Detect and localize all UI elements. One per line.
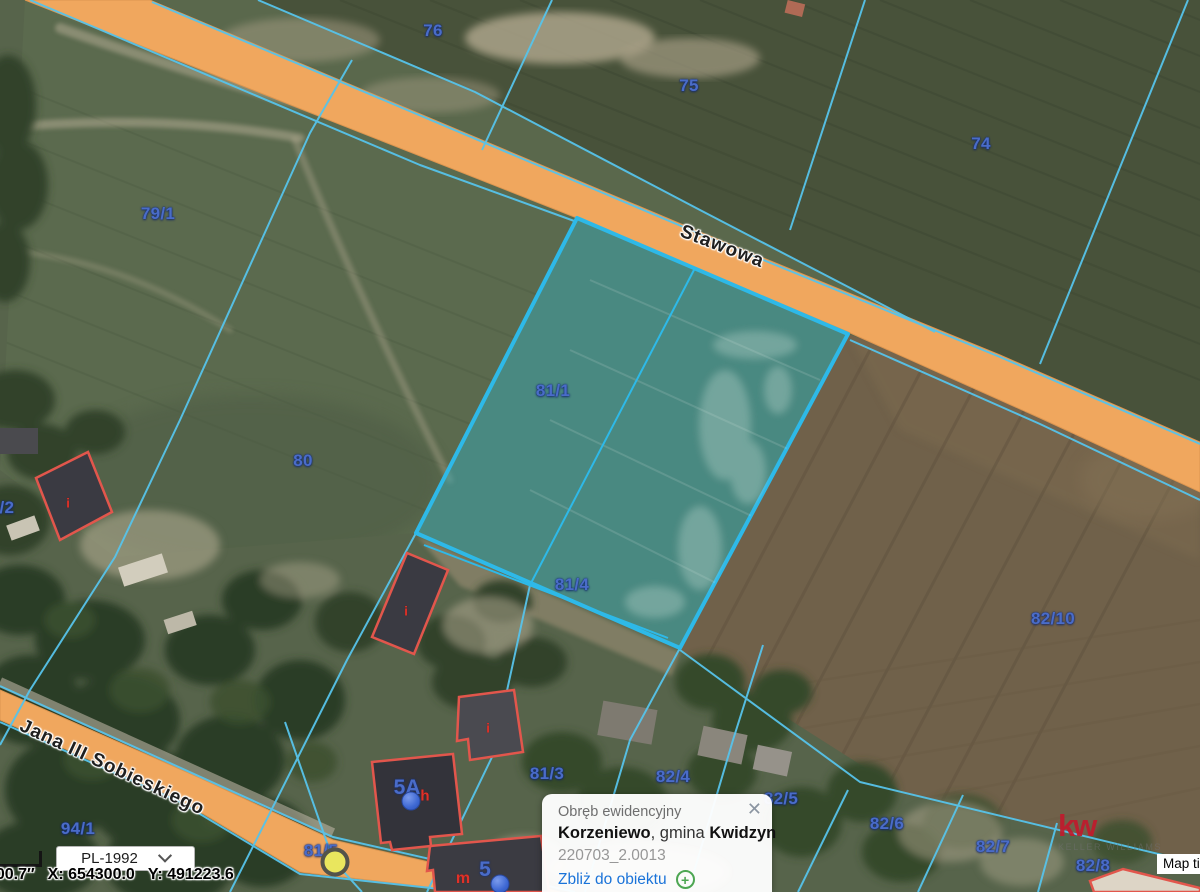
parcel-label-9/2: 9/2 <box>0 498 14 518</box>
map-tiles-attribution: Map tiles <box>1157 854 1200 874</box>
scale-bar <box>0 851 42 867</box>
parcel-label-82/10: 82/10 <box>1031 609 1075 629</box>
kw-watermark: kw KELLER WILLIAMS <box>1058 808 1162 852</box>
building-label-i: i <box>486 721 490 736</box>
parcel-label-76: 76 <box>423 21 443 41</box>
zoom-to-object-icon[interactable]: + <box>676 870 695 889</box>
parcel-label-81/3: 81/3 <box>530 764 564 784</box>
parcel-label-79/1: 79/1 <box>141 204 175 224</box>
building-label-h: h <box>420 788 429 805</box>
building-label-5: 5 <box>479 858 491 882</box>
building-label-m: m <box>456 870 470 888</box>
coord-y: Y: 491223.6 <box>148 866 234 884</box>
building-label-i: i <box>66 496 70 511</box>
parcel-label-82/8: 82/8 <box>1076 856 1110 876</box>
parcel-label-82/4: 82/4 <box>656 767 690 787</box>
zoom-to-object-link[interactable]: Zbliż do obiektu <box>558 871 667 889</box>
popup-separator: , gmina <box>651 824 710 842</box>
parcel-label-82/7: 82/7 <box>976 837 1010 857</box>
address-point-marker <box>491 875 510 892</box>
address-point-marker <box>402 792 421 811</box>
parcel-label-74: 74 <box>971 134 991 154</box>
parcel-info-popup: ✕ Obręb ewidencyjny Korzeniewo, gmina Kw… <box>542 794 772 892</box>
coord-fragment: ′00.7″ <box>0 866 35 884</box>
parcel-label-81/4: 81/4 <box>555 575 589 595</box>
parcel-label-94/1: 94/1 <box>61 819 95 839</box>
map-viewer: 76757479/18081/181/482/109/294/181/581/3… <box>0 0 1200 892</box>
parcel-label-80: 80 <box>293 451 313 471</box>
close-icon[interactable]: ✕ <box>747 799 762 819</box>
coordinates-readout: ′00.7″ X: 654300.0 Y: 491223.6 <box>0 866 234 884</box>
vertex-marker <box>321 848 350 877</box>
popup-town: Korzeniewo <box>558 824 651 842</box>
kw-subtitle: KELLER WILLIAMS <box>1058 842 1162 852</box>
parcel-label-81/1: 81/1 <box>536 381 570 401</box>
popup-area-code: 220703_2.0013 <box>558 847 758 865</box>
popup-municipality: Kwidzyn <box>709 824 776 842</box>
building-label-i: i <box>404 604 408 619</box>
popup-title: Obręb ewidencyjny <box>558 804 758 820</box>
parcel-label-82/6: 82/6 <box>870 814 904 834</box>
chevron-down-icon <box>158 849 172 863</box>
map-canvas[interactable] <box>0 0 1200 892</box>
popup-area-name: Korzeniewo, gmina Kwidzyn <box>558 824 758 843</box>
kw-logo: kw <box>1058 808 1162 844</box>
parcel-label-75: 75 <box>679 76 699 96</box>
crs-value: PL-1992 <box>81 850 138 867</box>
coord-x: X: 654300.0 <box>48 866 135 884</box>
